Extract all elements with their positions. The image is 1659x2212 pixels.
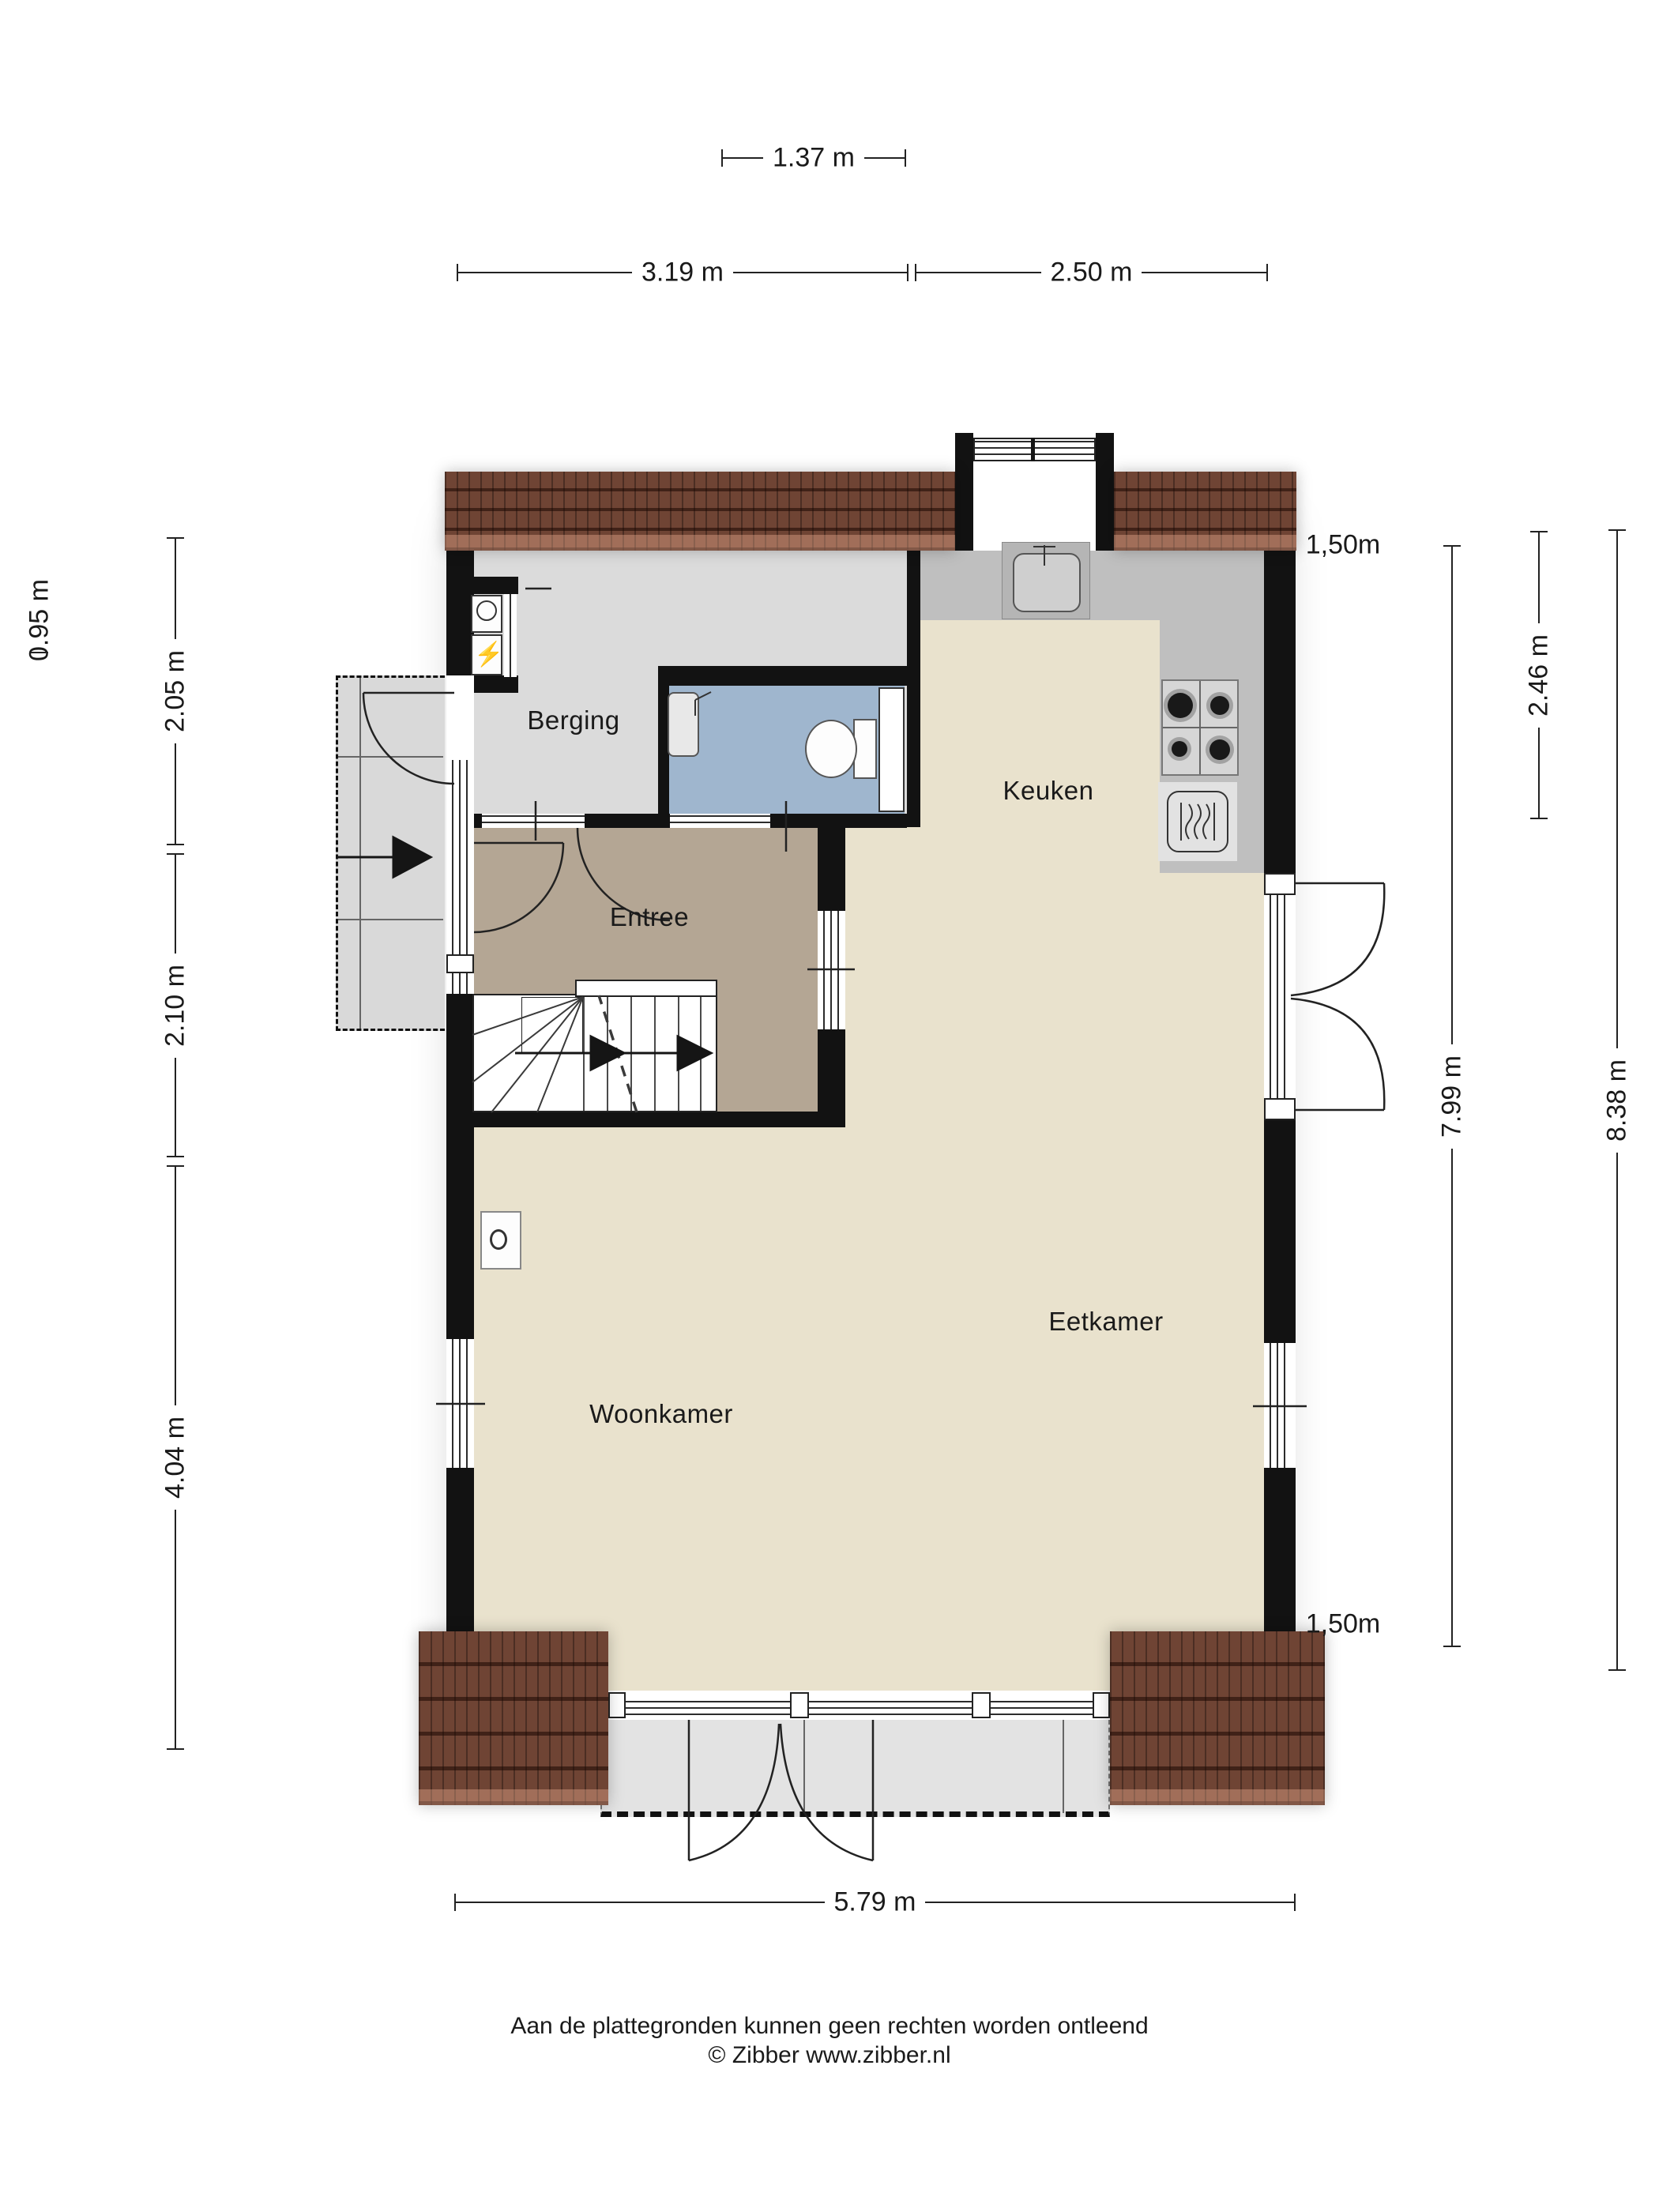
roof-bottom-left	[419, 1631, 608, 1805]
floorplan-canvas: ⚡	[0, 0, 1659, 2212]
height-label-bottom: 1,50m	[1306, 1609, 1381, 1640]
roof-bottom-right	[1110, 1631, 1325, 1805]
hob-grid-h	[1163, 727, 1237, 728]
french-door-swing-bottom	[1291, 999, 1384, 1110]
toilet-bottom-window	[670, 814, 770, 828]
dim-right-keuken: 2.46 m	[1538, 531, 1540, 819]
fireplace-flue	[490, 1229, 507, 1250]
dim-label: 7.99 m	[1437, 1044, 1468, 1149]
room-label-entree: Entree	[610, 902, 689, 932]
bay-window-mullion	[1031, 438, 1035, 461]
dim-left-woonkamer: 4.04 m	[175, 1165, 176, 1750]
bottom-window-mullion-2	[972, 1692, 991, 1718]
dim-right-inner: 7.99 m	[1451, 545, 1453, 1647]
burner-icon	[1209, 739, 1230, 760]
bottom-window-cap-left	[608, 1692, 626, 1718]
wall-stairs-bottom	[446, 1112, 845, 1127]
front-door-jamb	[446, 954, 474, 973]
stair-tread	[583, 997, 585, 1111]
room-label-keuken: Keuken	[1003, 776, 1094, 806]
french-door-cap-top	[1264, 873, 1296, 895]
burner-icon	[1172, 741, 1187, 757]
staircase-landing	[575, 980, 717, 997]
stair-tread	[678, 997, 679, 1111]
berging-door-opening	[446, 675, 474, 760]
dim-label: 2.10 m	[160, 954, 191, 1058]
stair-tread	[607, 997, 608, 1111]
dim-label: 1.37 m	[763, 143, 864, 174]
french-door-swing-top	[1291, 883, 1384, 995]
wall-toilet-top	[658, 666, 907, 686]
dim-left-berging: 2.05 m	[175, 537, 176, 845]
dim-window-top: 1.37 m	[721, 157, 906, 159]
french-door-cap-bottom	[1264, 1098, 1296, 1120]
stair-tread	[654, 997, 656, 1111]
porch-step-line-v	[359, 678, 361, 1029]
dim-label: 0.95 m	[24, 568, 55, 672]
patio	[600, 1720, 1110, 1817]
burner-icon	[1210, 696, 1229, 715]
eetkamer-window	[1264, 1343, 1296, 1468]
dim-label: 2.46 m	[1524, 623, 1555, 728]
porch-step-line-2	[338, 919, 443, 920]
footer-disclaimer: Aan de plattegronden kunnen geen rechten…	[510, 2013, 1148, 2040]
dim-label: 2.05 m	[160, 639, 191, 743]
wall-bay-right	[1096, 433, 1114, 551]
staircase	[472, 994, 717, 1112]
dim-label: 8.38 m	[1602, 1048, 1633, 1153]
wall-berging-kitchen	[907, 551, 920, 827]
dim-bottom: 5.79 m	[454, 1902, 1296, 1903]
toilet-door-leaf	[878, 687, 905, 812]
wall-bay-left	[955, 433, 973, 551]
roof-top-right	[1114, 472, 1296, 551]
burner-icon	[1168, 693, 1193, 718]
dim-top-left: 3.19 m	[457, 272, 908, 273]
kitchen-counter-top	[920, 551, 1264, 620]
wall-right	[1264, 521, 1296, 1720]
stair-tread	[630, 997, 632, 1111]
kitchen-sink-icon	[1013, 553, 1081, 612]
boiler-dial	[476, 600, 497, 621]
bottom-window-mullion-1	[790, 1692, 809, 1718]
stair-tread	[700, 997, 702, 1111]
room-label-woonkamer: Woonkamer	[589, 1399, 733, 1429]
dim-label: 5.79 m	[825, 1887, 926, 1918]
dim-left-entree: 2.10 m	[175, 853, 176, 1157]
bottom-window-cap-right	[1093, 1692, 1110, 1718]
woonkamer-window	[446, 1339, 474, 1468]
footer-credit: © Zibber www.zibber.nl	[708, 2042, 950, 2069]
toilet-bowl-icon	[805, 720, 857, 778]
roof-top-left	[445, 472, 955, 551]
patio-line-1	[803, 1720, 805, 1813]
dim-label: 4.04 m	[160, 1405, 191, 1510]
meterkast-partition	[504, 594, 517, 677]
porch-step-line-1	[338, 756, 443, 758]
bottom-window-assembly	[608, 1691, 1110, 1720]
hand-basin-icon	[668, 692, 699, 757]
dim-left-porch: 0.95 m	[39, 586, 40, 653]
dim-label: 3.19 m	[632, 258, 733, 288]
staircase-winder	[521, 997, 583, 1053]
patio-line-2	[1063, 1720, 1064, 1813]
dim-right-outer: 8.38 m	[1616, 529, 1618, 1671]
meter-bolt: ⚡	[474, 638, 499, 671]
dim-top-right: 2.50 m	[915, 272, 1268, 273]
porch	[336, 675, 445, 1031]
height-label-top: 1,50m	[1306, 530, 1381, 561]
dim-label: 2.50 m	[1041, 258, 1142, 288]
french-door-opening	[1264, 873, 1296, 1120]
room-label-eetkamer: Eetkamer	[1048, 1307, 1163, 1337]
entree-window	[818, 911, 845, 1029]
wall-meterkast-top	[474, 577, 518, 594]
oven-panel	[1158, 782, 1237, 861]
berging-bottom-window-1	[482, 814, 585, 828]
room-label-berging: Berging	[527, 705, 619, 735]
